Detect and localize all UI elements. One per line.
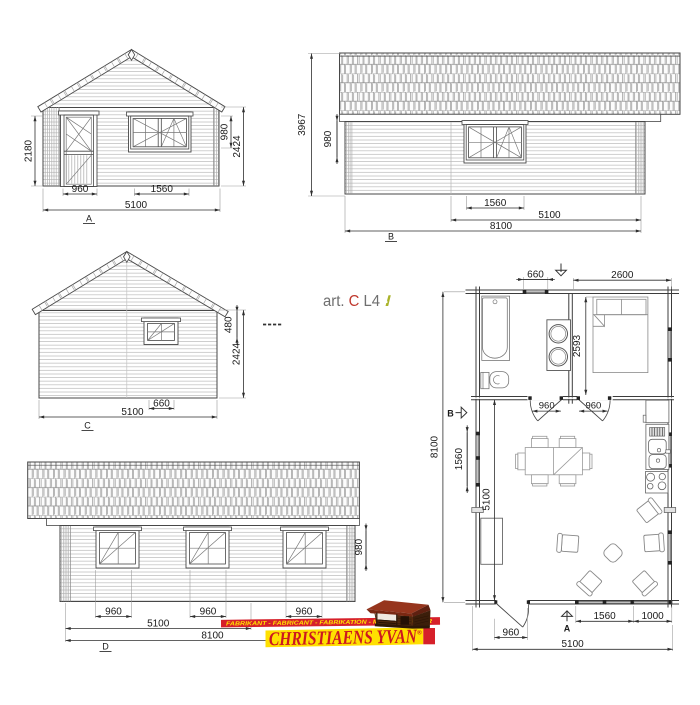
svg-text:®: ®	[417, 630, 422, 637]
svg-text:5100: 5100	[482, 488, 493, 511]
svg-text:5100: 5100	[561, 639, 584, 650]
svg-text:5100: 5100	[121, 407, 144, 418]
svg-text:480: 480	[224, 316, 235, 333]
svg-text:980: 980	[323, 130, 334, 147]
svg-text:D: D	[102, 642, 109, 652]
svg-text:8100: 8100	[429, 435, 440, 458]
svg-text:960: 960	[503, 627, 520, 638]
svg-text:CHRISTIAENS YVAN: CHRISTIAENS YVAN	[269, 626, 418, 650]
svg-text:660: 660	[527, 269, 544, 280]
svg-text:2600: 2600	[611, 270, 634, 281]
svg-text:8100: 8100	[490, 221, 513, 232]
svg-text:2424: 2424	[232, 342, 243, 365]
svg-text:660: 660	[153, 398, 170, 409]
svg-text:8100: 8100	[201, 630, 224, 641]
svg-text:B: B	[447, 409, 454, 419]
svg-text:5100: 5100	[125, 200, 148, 211]
svg-text:2593: 2593	[572, 334, 583, 357]
svg-text:A: A	[86, 214, 92, 224]
svg-text:980: 980	[220, 123, 231, 140]
svg-text:3967: 3967	[297, 113, 308, 136]
svg-text:art. C L4: art. C L4	[323, 293, 380, 310]
svg-text:1560: 1560	[151, 184, 174, 195]
svg-text:1560: 1560	[593, 611, 616, 622]
svg-text:2424: 2424	[232, 135, 243, 158]
svg-text:5100: 5100	[538, 210, 561, 221]
svg-text:960: 960	[296, 606, 313, 617]
svg-text:960: 960	[105, 606, 122, 617]
svg-text:1000: 1000	[641, 611, 664, 622]
svg-text:1560: 1560	[484, 198, 507, 209]
svg-text:1560: 1560	[454, 448, 465, 471]
svg-text:960: 960	[72, 184, 89, 195]
svg-text:2180: 2180	[24, 139, 35, 162]
svg-text:960: 960	[539, 401, 555, 412]
svg-text:980: 980	[354, 538, 365, 555]
svg-text:A: A	[564, 624, 571, 634]
svg-text:C: C	[84, 421, 91, 431]
svg-text:5100: 5100	[147, 618, 170, 629]
svg-text:960: 960	[585, 401, 601, 412]
svg-text:B: B	[388, 232, 394, 242]
svg-text:960: 960	[200, 606, 217, 617]
